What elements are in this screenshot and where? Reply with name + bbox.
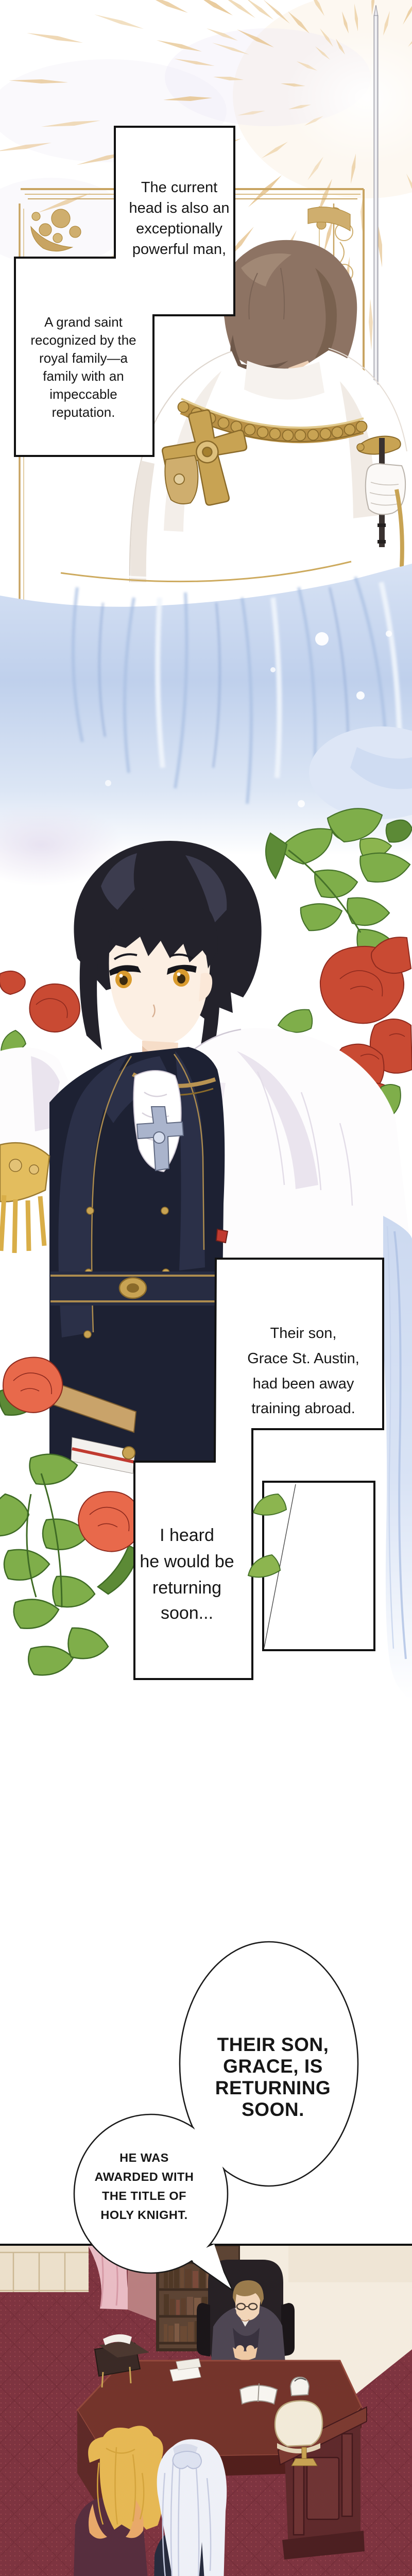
svg-text:royal family—a: royal family—a (39, 350, 128, 366)
svg-text:family with an: family with an (43, 368, 124, 384)
svg-text:reputation.: reputation. (52, 404, 115, 420)
svg-text:SOON.: SOON. (242, 2099, 304, 2120)
svg-text:AWARDED WITH: AWARDED WITH (95, 2170, 194, 2183)
svg-text:training abroad.: training abroad. (251, 1400, 355, 1417)
svg-text:A grand saint: A grand saint (44, 314, 123, 330)
svg-text:HOLY KNIGHT.: HOLY KNIGHT. (100, 2208, 187, 2222)
svg-text:HE WAS: HE WAS (119, 2151, 169, 2164)
svg-text:he would be: he would be (140, 1552, 234, 1571)
svg-text:RETURNING: RETURNING (215, 2077, 331, 2098)
svg-text:Their son,: Their son, (270, 1325, 337, 1342)
svg-text:powerful man,: powerful man, (132, 241, 226, 258)
svg-text:exceptionally: exceptionally (136, 221, 222, 237)
svg-text:The current: The current (141, 179, 217, 196)
svg-text:GRACE, IS: GRACE, IS (223, 2056, 323, 2077)
svg-text:I heard: I heard (160, 1526, 214, 1545)
svg-text:head is also an: head is also an (129, 200, 229, 216)
svg-text:had been away: had been away (253, 1376, 354, 1392)
svg-text:impeccable: impeccable (49, 386, 117, 402)
svg-text:recognized by the: recognized by the (30, 332, 136, 348)
svg-text:THEIR SON,: THEIR SON, (217, 2034, 329, 2055)
svg-text:THE TITLE OF: THE TITLE OF (102, 2189, 186, 2202)
svg-text:returning: returning (152, 1578, 221, 1598)
svg-text:soon...: soon... (161, 1603, 213, 1623)
svg-text:Grace St. Austin,: Grace St. Austin, (247, 1350, 359, 1367)
